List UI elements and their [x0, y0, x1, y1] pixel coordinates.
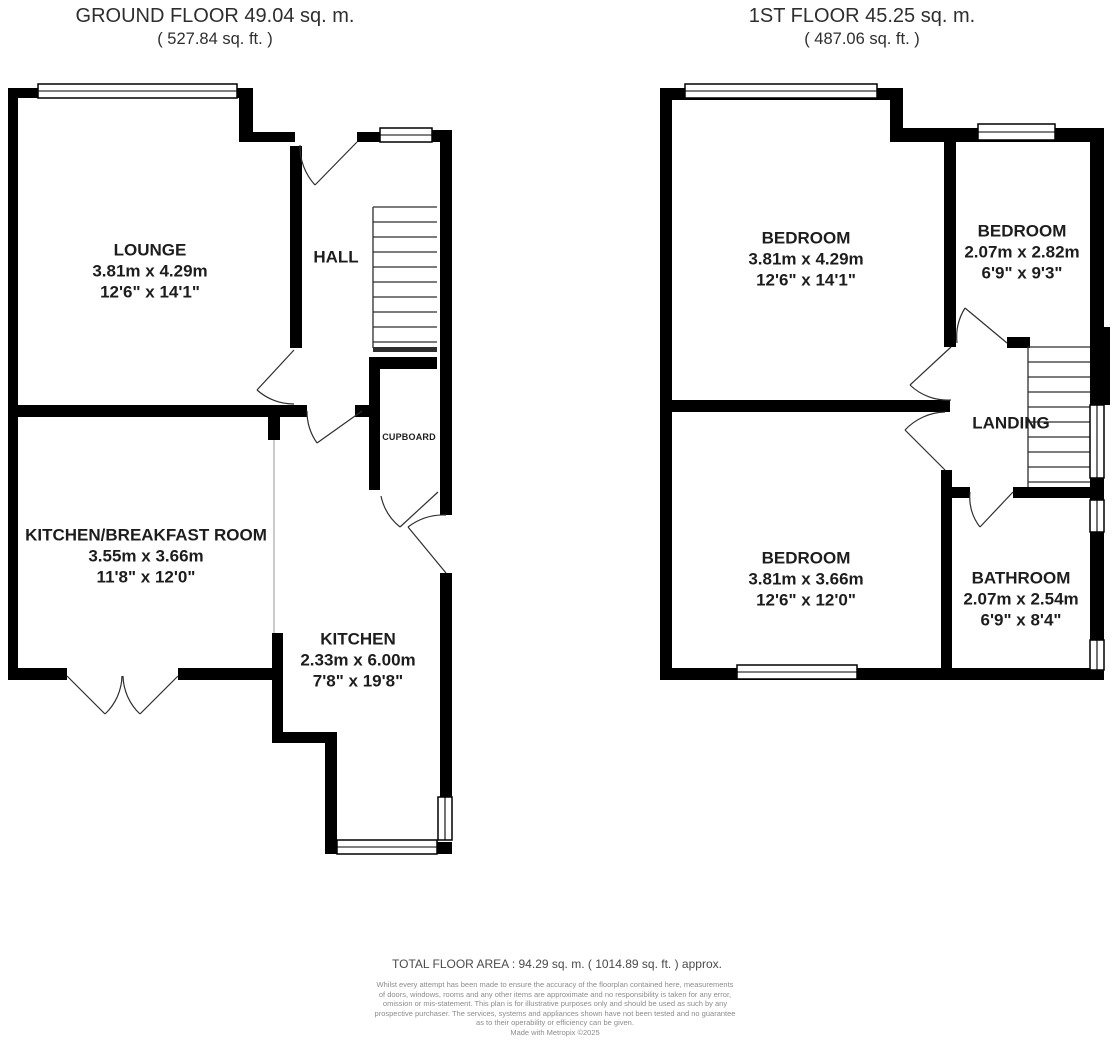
hall-kitchen-door — [307, 411, 362, 443]
room-name: BATHROOM — [963, 568, 1078, 589]
room-label-cupboard: CUPBOARD — [382, 432, 436, 442]
disclaimer-line: of doors, windows, rooms and any other i… — [375, 990, 736, 1000]
kitchen-side-window — [438, 797, 452, 840]
room-dim-metric: 3.81m x 4.29m — [92, 261, 207, 282]
room-dim-metric: 3.81m x 4.29m — [748, 249, 863, 270]
room-name: KITCHEN — [300, 629, 415, 650]
room-label-bedroom-front: BEDROOM 3.81m x 4.29m 12'6" x 14'1" — [748, 228, 863, 291]
room-dim-imperial: 12'6" x 12'0" — [748, 590, 863, 611]
bathroom-window-upper — [1090, 500, 1104, 532]
ground-windows — [38, 84, 452, 854]
room-dim-imperial: 6'9" x 9'3" — [964, 263, 1079, 284]
disclaimer-line: as to their operability or efficiency ca… — [375, 1018, 736, 1028]
room-name: BEDROOM — [964, 221, 1079, 242]
room-dim-metric: 3.55m x 3.66m — [25, 546, 267, 567]
lounge-window — [38, 84, 237, 98]
room-dim-imperial: 6'9" x 8'4" — [963, 610, 1078, 631]
room-label-bedroom-back: BEDROOM 3.81m x 3.66m 12'6" x 12'0" — [748, 548, 863, 611]
ground-walls — [8, 88, 452, 854]
lounge-door — [257, 350, 294, 404]
room-name: KITCHEN/BREAKFAST ROOM — [25, 525, 267, 546]
room-label-kitchen-breakfast: KITCHEN/BREAKFAST ROOM 3.55m x 3.66m 11'… — [25, 525, 267, 588]
room-name: HALL — [313, 247, 358, 268]
floorplan-page: GROUND FLOOR 49.04 sq. m. ( 527.84 sq. f… — [0, 0, 1112, 1048]
bedroom-front-door — [910, 347, 951, 400]
room-dim-imperial: 12'6" x 14'1" — [92, 282, 207, 303]
cupboard-door — [381, 492, 438, 527]
room-name: BEDROOM — [748, 548, 863, 569]
ground-floor-subtitle-text: ( 527.84 sq. ft. ) — [76, 29, 355, 49]
room-label-hall: HALL — [313, 247, 358, 268]
room-dim-imperial: 7'8" x 19'8" — [300, 671, 415, 692]
hall-window — [380, 128, 432, 142]
first-floor-title-text: 1ST FLOOR 45.25 sq. m. — [749, 4, 975, 29]
room-name: BEDROOM — [748, 228, 863, 249]
room-dim-metric: 3.81m x 3.66m — [748, 569, 863, 590]
first-floor-subtitle-text: ( 487.06 sq. ft. ) — [749, 29, 975, 49]
bedroom-back-window — [737, 665, 857, 679]
room-dim-metric: 2.33m x 6.00m — [300, 650, 415, 671]
room-dim-imperial: 11'8" x 12'0" — [25, 567, 267, 588]
room-label-kitchen: KITCHEN 2.33m x 6.00m 7'8" x 19'8" — [300, 629, 415, 692]
bathroom-window-lower — [1090, 640, 1104, 670]
disclaimer-line: omission or mis-statement. This plan is … — [375, 999, 736, 1009]
ground-floor-title: GROUND FLOOR 49.04 sq. m. ( 527.84 sq. f… — [76, 4, 355, 49]
room-dim-metric: 2.07m x 2.82m — [964, 242, 1079, 263]
front-door — [300, 142, 357, 185]
room-name: LOUNGE — [92, 240, 207, 261]
bathroom-door — [970, 492, 1013, 527]
back-door — [408, 515, 446, 573]
room-label-bedroom-side: BEDROOM 2.07m x 2.82m 6'9" x 9'3" — [964, 221, 1079, 284]
bedroom-side-door — [957, 308, 1007, 343]
bedroom-back-door — [905, 412, 945, 470]
room-name: LANDING — [972, 413, 1049, 434]
bedroom-side-window — [978, 124, 1055, 140]
total-floor-area: TOTAL FLOOR AREA : 94.29 sq. m. ( 1014.8… — [392, 957, 722, 971]
room-dim-metric: 2.07m x 2.54m — [963, 589, 1078, 610]
credit-line: Made with Metropix ©2025 — [375, 1028, 736, 1038]
room-dim-imperial: 12'6" x 14'1" — [748, 270, 863, 291]
disclaimer-line: prospective purchaser. The services, sys… — [375, 1009, 736, 1019]
room-label-landing: LANDING — [972, 413, 1049, 434]
kitchen-rear-window — [337, 840, 437, 854]
landing-window — [1090, 405, 1104, 478]
room-label-lounge: LOUNGE 3.81m x 4.29m 12'6" x 14'1" — [92, 240, 207, 303]
disclaimer-line: Whilst every attempt has been made to en… — [375, 980, 736, 990]
first-floor-title: 1ST FLOOR 45.25 sq. m. ( 487.06 sq. ft. … — [749, 4, 975, 49]
ground-floor-title-text: GROUND FLOOR 49.04 sq. m. — [76, 4, 355, 29]
disclaimer: Whilst every attempt has been made to en… — [375, 980, 736, 1038]
ground-floor-plan — [8, 84, 452, 854]
room-label-bathroom: BATHROOM 2.07m x 2.54m 6'9" x 8'4" — [963, 568, 1078, 631]
french-doors — [67, 676, 178, 714]
ground-stairs — [373, 207, 437, 352]
bedroom-front-window — [685, 84, 877, 98]
